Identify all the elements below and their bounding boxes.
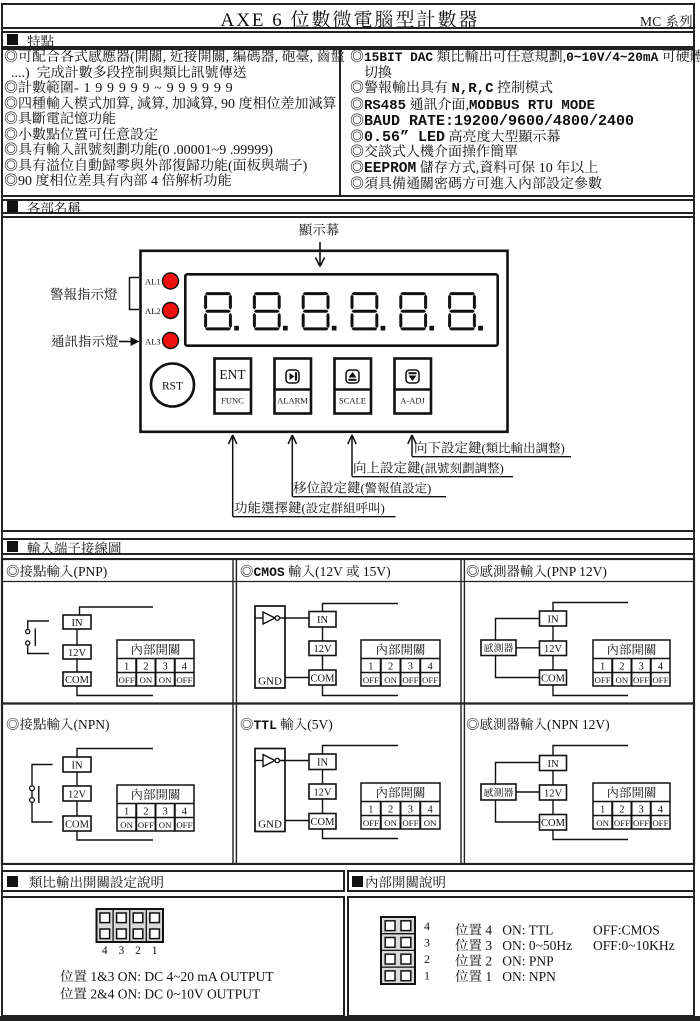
svg-text:OFF: OFF <box>402 675 418 685</box>
svg-text:OFF: OFF <box>652 818 668 828</box>
svg-text:◎接點輸入(NPN): ◎接點輸入(NPN) <box>6 717 110 732</box>
svg-text:COM: COM <box>541 673 566 684</box>
svg-text:ON: ON <box>384 818 397 828</box>
svg-text:COM: COM <box>65 819 90 830</box>
svg-text:IN: IN <box>547 759 558 770</box>
svg-text:AL3: AL3 <box>145 337 161 347</box>
svg-text:◎CMOS 輸入(12V 或 15V): ◎CMOS 輸入(12V 或 15V) <box>240 564 391 580</box>
svg-text:ON: ON <box>120 820 133 830</box>
svg-text:ON: ON <box>140 675 153 685</box>
svg-text:3: 3 <box>408 805 413 816</box>
svg-text:OFF: OFF <box>652 675 668 685</box>
svg-text:4: 4 <box>424 919 430 933</box>
svg-text:1: 1 <box>124 662 129 673</box>
svg-text:2: 2 <box>388 805 393 816</box>
svg-text:FUNC: FUNC <box>221 396 244 406</box>
svg-text:內部開關: 內部開關 <box>130 643 180 657</box>
svg-text:2: 2 <box>619 805 624 816</box>
svg-text:COM: COM <box>541 818 566 829</box>
svg-text:4: 4 <box>427 662 433 673</box>
svg-text:向下設定鍵(類比輸出調整): 向下設定鍵(類比輸出調整) <box>414 441 565 456</box>
svg-text:12V: 12V <box>313 787 332 798</box>
svg-text:2: 2 <box>424 952 430 966</box>
svg-text:4: 4 <box>658 805 664 816</box>
svg-text:OFF: OFF <box>422 675 438 685</box>
svg-text:4: 4 <box>182 662 188 673</box>
svg-text:位置 1&3 ON: DC 4~20 mA OUTPUT: 位置 1&3 ON: DC 4~20 mA OUTPUT <box>60 969 274 984</box>
svg-text:OFF: OFF <box>363 675 379 685</box>
svg-text:位置 4 ON: TTL: 位置 4 ON: TTL <box>455 923 553 938</box>
svg-text:感測器: 感測器 <box>484 643 514 655</box>
svg-text:1: 1 <box>600 662 605 673</box>
svg-text:RST: RST <box>162 381 183 393</box>
svg-text:內部開關: 內部開關 <box>375 643 425 657</box>
svg-text:2: 2 <box>143 662 148 673</box>
svg-text:4: 4 <box>102 945 108 957</box>
svg-text:SCALE: SCALE <box>339 396 366 406</box>
svg-text:3: 3 <box>638 805 643 816</box>
svg-text:內部開關: 內部開關 <box>375 786 425 800</box>
svg-text:ALARM: ALARM <box>277 396 308 406</box>
svg-text:1: 1 <box>600 805 605 816</box>
svg-text:AL1: AL1 <box>145 277 161 287</box>
svg-text:1: 1 <box>124 807 129 818</box>
svg-text:12V: 12V <box>68 789 87 800</box>
svg-text:12V: 12V <box>313 644 332 655</box>
svg-text:COM: COM <box>65 675 90 686</box>
svg-text:1: 1 <box>368 805 373 816</box>
svg-text:4: 4 <box>182 807 188 818</box>
svg-text:3: 3 <box>119 945 125 957</box>
svg-text:功能選擇鍵(設定群組呼叫): 功能選擇鍵(設定群組呼叫) <box>234 501 385 516</box>
svg-text:顯示幕: 顯示幕 <box>299 223 340 238</box>
svg-text:內部開關: 內部開關 <box>606 643 656 657</box>
svg-text:AL2: AL2 <box>145 306 161 316</box>
svg-text:12V: 12V <box>68 648 87 659</box>
svg-text:OFF: OFF <box>119 675 135 685</box>
svg-text:位置 2&4 ON: DC 0~10V OUTPUT: 位置 2&4 ON: DC 0~10V OUTPUT <box>60 987 261 1002</box>
svg-text:3: 3 <box>424 936 430 950</box>
svg-text:ENT: ENT <box>219 367 246 382</box>
svg-text:1: 1 <box>368 662 373 673</box>
svg-text:12V: 12V <box>544 788 563 799</box>
svg-text:ON: ON <box>384 675 397 685</box>
svg-text:IN: IN <box>547 614 558 625</box>
svg-text:3: 3 <box>408 662 413 673</box>
svg-text:OFF: OFF <box>633 675 649 685</box>
svg-text:OFF: OFF <box>176 675 192 685</box>
svg-text:3: 3 <box>638 662 643 673</box>
svg-text:ON: ON <box>424 818 437 828</box>
svg-text:◎TTL 輸入(5V): ◎TTL 輸入(5V) <box>240 717 333 733</box>
svg-text:IN: IN <box>317 615 328 626</box>
svg-text:COM: COM <box>311 673 336 684</box>
svg-text:IN: IN <box>317 758 328 769</box>
svg-text:◎接點輸入(PNP): ◎接點輸入(PNP) <box>6 564 107 579</box>
svg-text:OFF: OFF <box>633 818 649 828</box>
svg-text:ON: ON <box>596 818 609 828</box>
svg-text:OFF:0~10KHz: OFF:0~10KHz <box>593 938 675 953</box>
svg-text:ON: ON <box>159 820 172 830</box>
svg-text:IN: IN <box>71 760 82 771</box>
svg-text:位置 3 ON: 0~50Hz: 位置 3 ON: 0~50Hz <box>455 938 572 953</box>
svg-text:OFF: OFF <box>614 818 630 828</box>
svg-text:OFF:CMOS: OFF:CMOS <box>593 923 660 938</box>
svg-text:通訊指示燈: 通訊指示燈 <box>51 334 119 349</box>
svg-text:◎感測器輸入(PNP 12V): ◎感測器輸入(PNP 12V) <box>466 564 607 579</box>
svg-text:OFF: OFF <box>176 820 192 830</box>
svg-text:位置 2 ON: PNP: 位置 2 ON: PNP <box>455 954 554 969</box>
svg-text:2: 2 <box>619 662 624 673</box>
svg-text:OFF: OFF <box>138 820 154 830</box>
svg-text:1: 1 <box>152 945 158 957</box>
svg-text:OFF: OFF <box>595 675 611 685</box>
svg-text:2: 2 <box>143 807 148 818</box>
svg-text:OFF: OFF <box>363 818 379 828</box>
svg-text:移位設定鍵(警報值設定): 移位設定鍵(警報值設定) <box>293 481 431 496</box>
svg-text:GND: GND <box>258 676 282 688</box>
svg-text:內部開關: 內部開關 <box>606 786 656 800</box>
svg-text:4: 4 <box>658 662 664 673</box>
svg-text:ON: ON <box>616 675 629 685</box>
svg-text:OFF: OFF <box>402 818 418 828</box>
svg-text:2: 2 <box>135 945 141 957</box>
svg-text:警報指示燈: 警報指示燈 <box>50 287 118 302</box>
svg-text:◎感測器輸入(NPN 12V): ◎感測器輸入(NPN 12V) <box>466 717 610 732</box>
svg-text:12V: 12V <box>544 644 563 655</box>
svg-text:ON: ON <box>159 675 172 685</box>
svg-text:3: 3 <box>162 807 167 818</box>
svg-text:A-ADJ: A-ADJ <box>400 396 425 406</box>
svg-text:3: 3 <box>162 662 167 673</box>
svg-text:4: 4 <box>427 805 433 816</box>
svg-text:向上設定鍵(訊號刻劃調整): 向上設定鍵(訊號刻劃調整) <box>353 461 504 476</box>
svg-text:1: 1 <box>424 969 430 983</box>
svg-text:2: 2 <box>388 662 393 673</box>
svg-text:GND: GND <box>258 819 282 831</box>
svg-text:感測器: 感測器 <box>484 787 514 799</box>
svg-text:COM: COM <box>311 817 336 828</box>
svg-text:位置 1 ON: NPN: 位置 1 ON: NPN <box>455 969 556 984</box>
svg-text:IN: IN <box>71 618 82 629</box>
svg-text:內部開關: 內部開關 <box>130 788 180 802</box>
